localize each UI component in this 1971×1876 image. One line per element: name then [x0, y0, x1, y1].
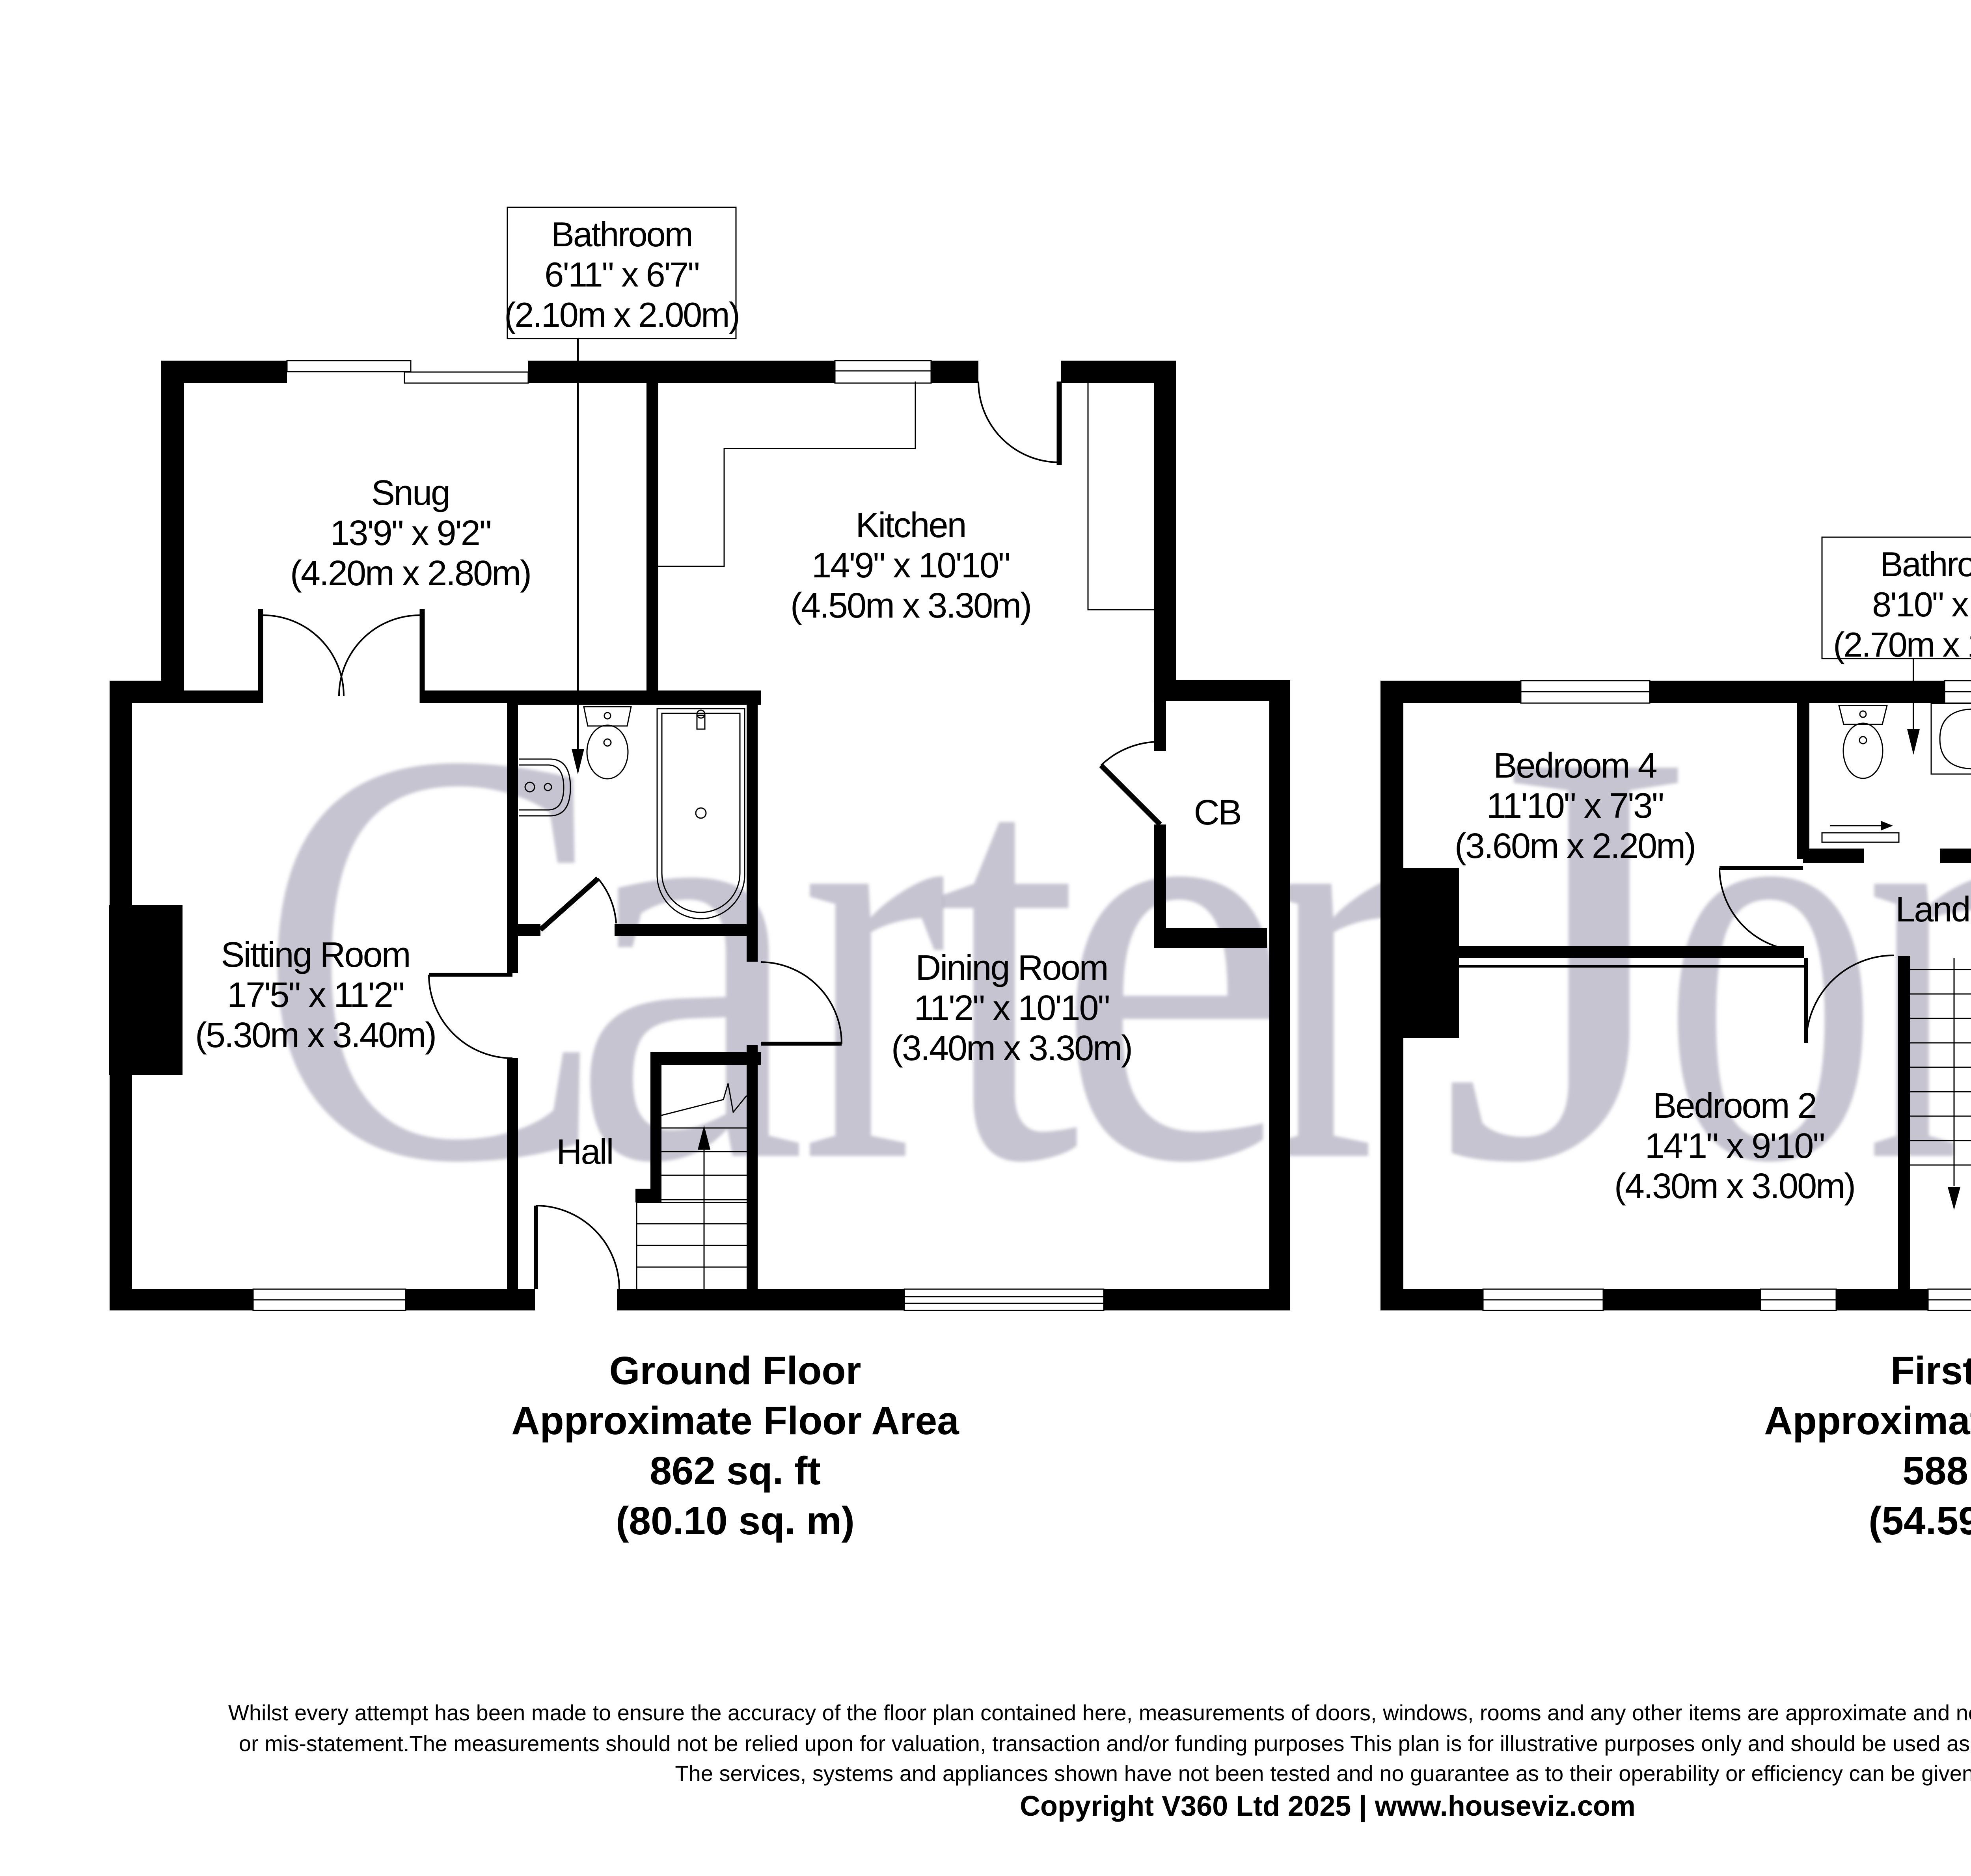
- svg-text:Approximate Floor Area: Approximate Floor Area: [511, 1399, 959, 1443]
- svg-text:C: C: [256, 627, 609, 1284]
- svg-text:n: n: [1865, 627, 1971, 1284]
- svg-text:Bathroom: Bathroom: [1880, 545, 1971, 584]
- svg-text:(2.10m x 2.00m): (2.10m x 2.00m): [504, 295, 739, 334]
- svg-text:Ground Floor: Ground Floor: [609, 1349, 861, 1393]
- svg-text:Kitchen: Kitchen: [855, 506, 965, 545]
- svg-text:a: a: [572, 627, 806, 1284]
- svg-text:o: o: [1661, 627, 1880, 1284]
- svg-text:8'10" x 5'3": 8'10" x 5'3": [1872, 585, 1971, 624]
- svg-text:(80.10 sq. m): (80.10 sq. m): [616, 1499, 855, 1543]
- svg-text:e: e: [1055, 627, 1291, 1284]
- svg-text:862 sq. ft: 862 sq. ft: [650, 1449, 821, 1493]
- svg-text:(54.59 sq. m): (54.59 sq. m): [1869, 1499, 1971, 1543]
- svg-text:Approximate Floor Area: Approximate Floor Area: [1764, 1399, 1971, 1443]
- svg-text:The services, systems and appl: The services, systems and appliances sho…: [675, 1761, 1971, 1786]
- svg-text:Bathroom: Bathroom: [551, 215, 692, 254]
- svg-text:(4.20m x 2.80m): (4.20m x 2.80m): [290, 554, 531, 593]
- svg-text:13'9" x 9'2": 13'9" x 9'2": [330, 514, 491, 553]
- svg-text:6'11" x 6'7": 6'11" x 6'7": [544, 255, 699, 294]
- svg-text:Snug: Snug: [371, 473, 449, 513]
- svg-text:First Floor: First Floor: [1891, 1349, 1971, 1393]
- svg-text:r: r: [1264, 627, 1410, 1284]
- svg-text:J: J: [1438, 627, 1692, 1284]
- svg-text:588 sq. ft: 588 sq. ft: [1902, 1449, 1971, 1493]
- svg-text:(4.50m x 3.30m): (4.50m x 3.30m): [790, 586, 1031, 625]
- svg-text:r: r: [801, 627, 947, 1284]
- svg-text:or mis-statement.The measureme: or mis-statement.The measurements should…: [239, 1731, 1971, 1756]
- svg-text:Copyright V360 Ltd 2025 | www.: Copyright V360 Ltd 2025 | www.houseviz.c…: [1020, 1790, 1636, 1822]
- svg-text:Whilst every attempt has been: Whilst every attempt has been made to en…: [228, 1700, 1971, 1725]
- svg-text:14'9" x 10'10": 14'9" x 10'10": [812, 546, 1010, 585]
